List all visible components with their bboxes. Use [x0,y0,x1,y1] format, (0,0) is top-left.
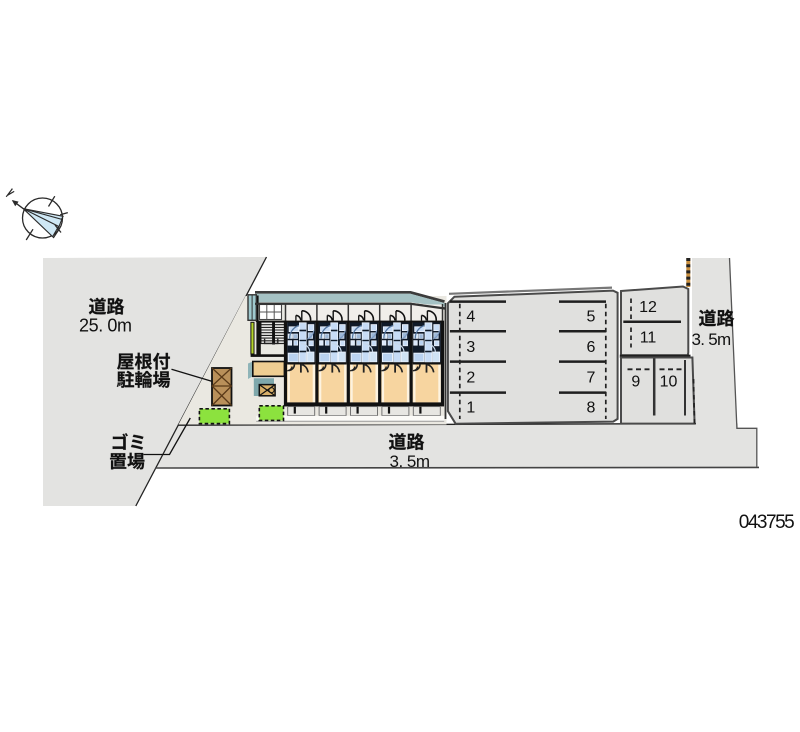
svg-text:3: 3 [466,339,475,356]
svg-text:3. 5m: 3. 5m [692,330,732,349]
svg-text:2: 2 [466,370,475,387]
svg-text:3. 5m: 3. 5m [390,452,430,471]
svg-text:7: 7 [587,370,596,387]
svg-text:12: 12 [639,299,657,316]
svg-text:6: 6 [587,339,596,356]
svg-text:4: 4 [466,308,475,325]
svg-text:25. 0m: 25. 0m [79,315,132,335]
svg-text:10: 10 [660,373,678,390]
svg-text:9: 9 [631,373,640,390]
svg-text:8: 8 [587,400,596,417]
svg-text:11: 11 [640,330,657,347]
svg-text:5: 5 [587,308,596,325]
svg-text:043755: 043755 [739,512,794,533]
svg-text:1: 1 [466,400,475,417]
